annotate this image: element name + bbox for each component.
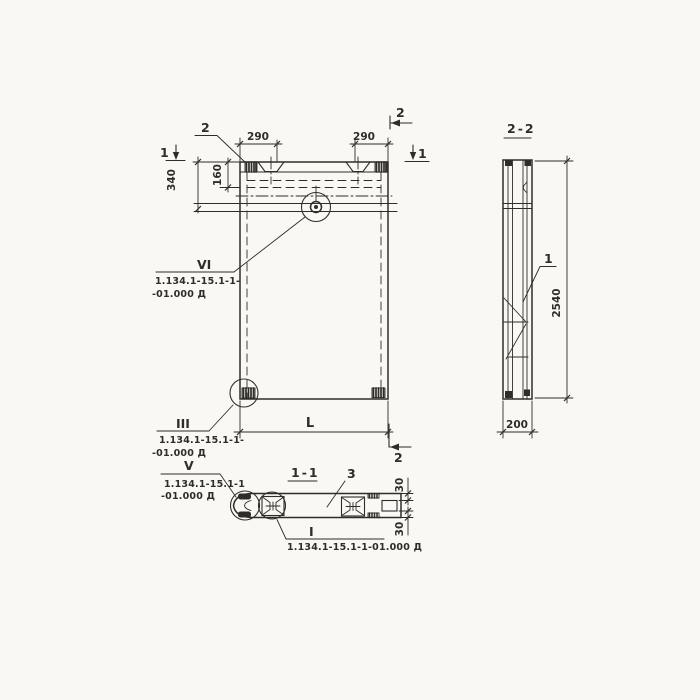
callout-vi-mark: VI bbox=[197, 257, 211, 272]
plan-callout-3-label: 3 bbox=[347, 466, 356, 481]
section-1-left-label: 1 bbox=[160, 145, 169, 160]
section-mark-2-bottom-right: 2 bbox=[389, 424, 411, 465]
callout-iii: III 1.134.1-15.1-1- -01.000 Д bbox=[152, 405, 244, 459]
section-2-bottom-right-label: 2 bbox=[394, 450, 403, 465]
callout-vi-ref2: -01.000 Д bbox=[152, 289, 206, 300]
callout-i-ref1: 1.134.1-15.1-1-01.000 Д bbox=[287, 542, 422, 553]
plan-view-title: 1-1 bbox=[291, 465, 320, 480]
front-top-right-anchor-block bbox=[375, 162, 387, 172]
drawing-page: 290 290 340 160 bbox=[0, 0, 700, 700]
callout-v: V 1.134.1-15.1-1 -01.000 Д bbox=[161, 458, 245, 502]
dim-290-right: 290 bbox=[350, 131, 393, 161]
dim-340: 340 bbox=[166, 157, 240, 213]
dim-290-left-label: 290 bbox=[247, 131, 269, 143]
front-left-recess bbox=[258, 157, 284, 184]
side-view-2-2: 2-2 1 bbox=[497, 121, 573, 438]
dim-160-label: 160 bbox=[212, 164, 224, 186]
callout-iii-ref2: -01.000 Д bbox=[152, 448, 206, 459]
section-2-top-left-label: 2 bbox=[201, 120, 210, 135]
drawing-canvas: 290 290 340 160 bbox=[0, 0, 700, 700]
section-2-top-right-label: 2 bbox=[396, 105, 405, 120]
dim-200: 200 bbox=[497, 401, 538, 438]
section-mark-1-right: 1 bbox=[405, 145, 429, 162]
callout-iii-mark: III bbox=[176, 416, 190, 431]
callout-vi-ref1: 1.134.1-15.1-1- bbox=[155, 276, 240, 287]
dim-30-top-label: 30 bbox=[394, 478, 406, 493]
callout-v-ref1: 1.134.1-15.1-1 bbox=[164, 479, 245, 490]
dim-L-label: L bbox=[306, 416, 314, 431]
plan-right-end bbox=[368, 494, 401, 518]
plan-opening-2 bbox=[342, 497, 365, 516]
front-bottom-right-anchor-block bbox=[372, 388, 385, 398]
front-view: 290 290 340 160 bbox=[152, 105, 429, 465]
callout-iii-ref1: 1.134.1-15.1-1- bbox=[159, 435, 244, 446]
section-mark-2-top-right: 2 bbox=[390, 105, 412, 129]
side-callout-1-label: 1 bbox=[544, 251, 553, 266]
dim-2540-label: 2540 bbox=[551, 288, 563, 317]
plan-view-1-1: 1-1 bbox=[161, 458, 422, 553]
callout-i-mark: I bbox=[309, 524, 314, 539]
front-top-left-anchor-block bbox=[245, 162, 257, 172]
plan-opening-1 bbox=[259, 492, 286, 519]
dim-290-right-label: 290 bbox=[353, 131, 375, 143]
section-mark-2-top-left: 2 bbox=[195, 120, 246, 163]
section-1-right-label: 1 bbox=[418, 146, 427, 161]
dim-160: 160 bbox=[212, 158, 240, 192]
front-bottom-left-anchor-block bbox=[230, 379, 258, 407]
dim-200-label: 200 bbox=[506, 419, 528, 431]
callout-v-mark: V bbox=[184, 458, 194, 473]
dim-290-left: 290 bbox=[235, 131, 282, 161]
dim-2540: 2540 bbox=[535, 156, 573, 403]
front-right-recess bbox=[346, 157, 370, 184]
section-mark-1-left: 1 bbox=[160, 145, 185, 161]
dim-30-bottom-label: 30 bbox=[394, 522, 406, 537]
dim-340-label: 340 bbox=[166, 169, 178, 191]
dim-L: L bbox=[234, 401, 393, 438]
side-view-title: 2-2 bbox=[507, 121, 536, 136]
callout-v-ref2: -01.000 Д bbox=[161, 491, 215, 502]
callout-vi: VI 1.134.1-15.1-1- -01.000 Д bbox=[152, 217, 305, 300]
